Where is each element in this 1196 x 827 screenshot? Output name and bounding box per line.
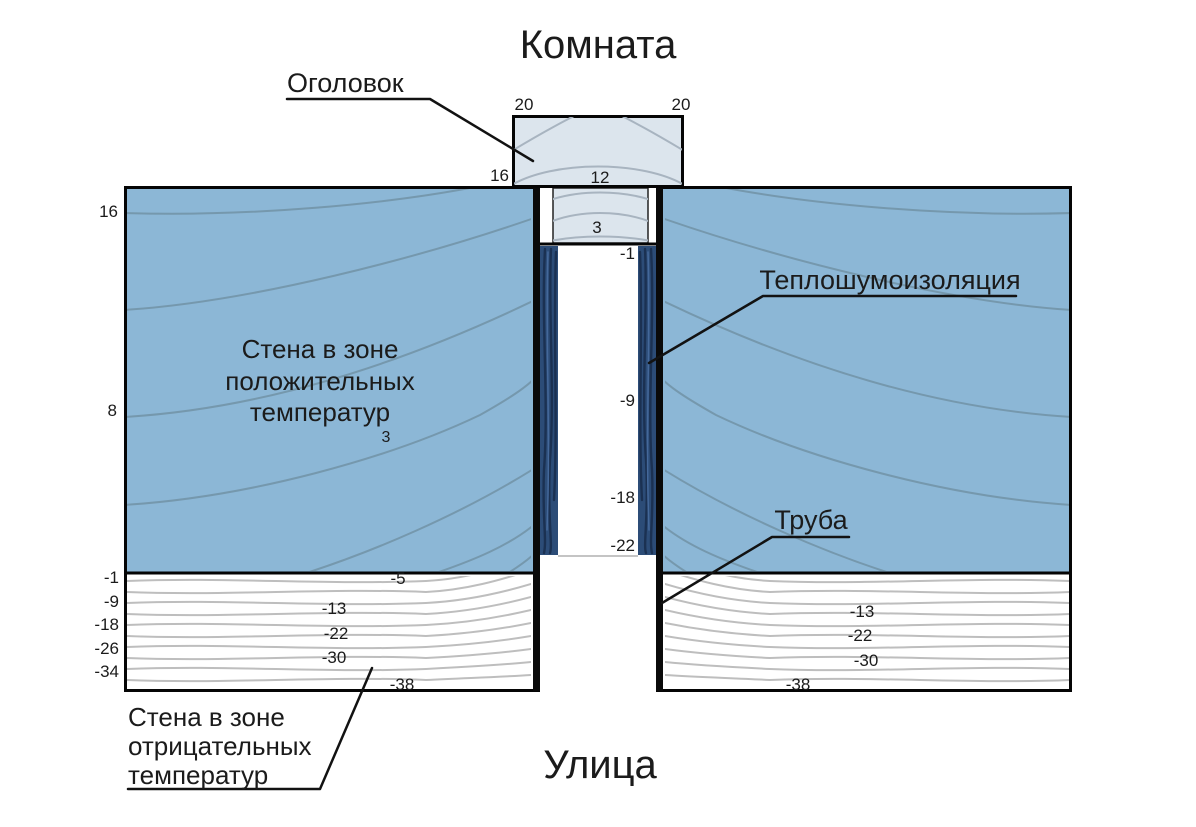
temp-label: -30 [322,648,347,667]
pipe-callout-label: Труба [774,505,848,535]
insulation-callout-label: Теплошумоизоляция [759,265,1020,295]
temp-label: -5 [390,569,405,588]
cap-leader-line [287,99,533,161]
temp-label: 3 [592,218,601,237]
wall-positive-label-line2: положительных [225,366,415,396]
temp-label: -13 [850,602,875,621]
wall-positive-label-line1: Стена в зоне [242,334,399,364]
temp-label: -9 [620,391,635,410]
temp-label: 16 [99,202,118,221]
temp-label: 12 [591,168,610,187]
wall-negative-label-line2: отрицательных [128,731,312,761]
insulation-right [638,246,656,555]
temp-label: -26 [94,639,119,658]
temp-label: -22 [610,536,635,555]
temp-label: 3 [382,429,391,446]
negative-outside-temp-labels: -1 -9 -18 -26 -34 [94,568,119,681]
temp-label: -18 [610,488,635,507]
pipe-wall-left [533,187,540,691]
temp-label: -13 [322,599,347,618]
diagram-canvas: Комната Улица Оголовок Теплошумоизоляция… [0,0,1196,827]
cap-callout-label: Оголовок [287,68,404,98]
temp-label: -22 [324,624,349,643]
temp-label: 20 [672,95,691,114]
temp-label: -34 [94,662,119,681]
wall-section-diagram: Комната Улица Оголовок Теплошумоизоляция… [0,0,1196,827]
wall-negative-label-line3: температур [128,760,268,790]
room-title: Комната [520,23,677,67]
wall-negative-label-line1: Стена в зоне [128,702,285,732]
temp-label: -9 [104,592,119,611]
insulation-left [540,246,558,555]
temp-label: -22 [848,626,873,645]
wall-positive-label-line3: температур [250,397,390,427]
street-title: Улица [543,743,657,787]
temp-label: -18 [94,615,119,634]
temp-label: 20 [515,95,534,114]
temp-label: -1 [104,568,119,587]
temp-label: -1 [620,244,635,263]
wall-negative-label: Стена в зоне отрицательных температур [128,702,312,790]
wall-positive-label: Стена в зоне положительных температур [225,334,415,427]
temp-label: 16 [490,166,509,185]
temp-label: -30 [854,651,879,670]
pipe-channel [533,186,663,692]
pipe-wall-right [656,187,663,691]
temp-label: -38 [786,675,811,694]
temp-label: -38 [390,675,415,694]
temp-label: 8 [108,401,117,420]
